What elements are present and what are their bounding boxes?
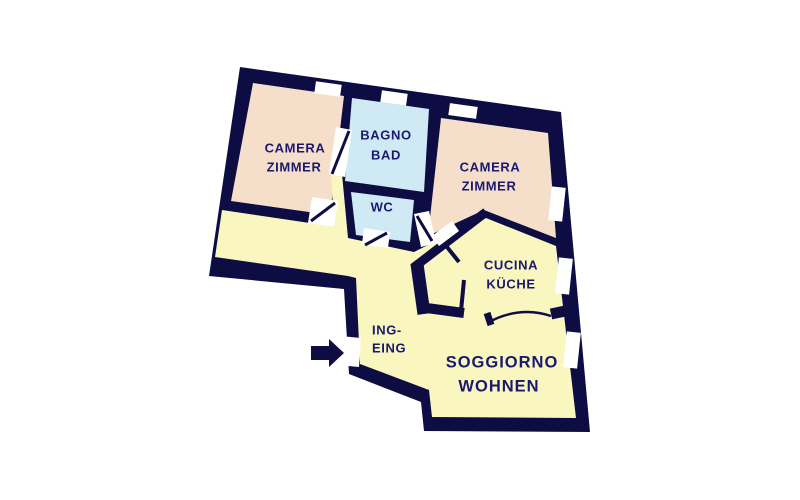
door-stop-kitchen-living	[487, 313, 491, 325]
wall-kitchen-entry	[419, 307, 464, 313]
label-bathroom-line1: BAGNO	[360, 127, 411, 142]
label-bedroom-right-line1: CAMERA	[460, 159, 521, 174]
label-entrance-line2: EING	[372, 340, 406, 355]
floor-plan: CAMERA ZIMMER BAGNO BAD WC CAMERA ZIMMER…	[0, 0, 800, 500]
label-kitchen-line1: CUCINA	[484, 257, 538, 272]
wall-kitchen-living	[551, 310, 570, 314]
label-bedroom-left-line1: CAMERA	[265, 140, 326, 155]
label-bathroom-line2: BAD	[371, 147, 401, 162]
floor-plan-page: CAMERA ZIMMER BAGNO BAD WC CAMERA ZIMMER…	[0, 0, 800, 500]
label-living-line1: SOGGIORNO	[446, 353, 559, 371]
label-bedroom-left-line2: ZIMMER	[267, 159, 322, 174]
room-bathroom	[345, 98, 429, 192]
label-entrance-line1: ING-	[372, 322, 402, 337]
label-bedroom-right-line2: ZIMMER	[462, 178, 517, 193]
label-wc: WC	[371, 199, 394, 214]
label-living-line2: WOHNEN	[458, 377, 539, 395]
label-kitchen-line2: KÜCHE	[486, 276, 535, 291]
